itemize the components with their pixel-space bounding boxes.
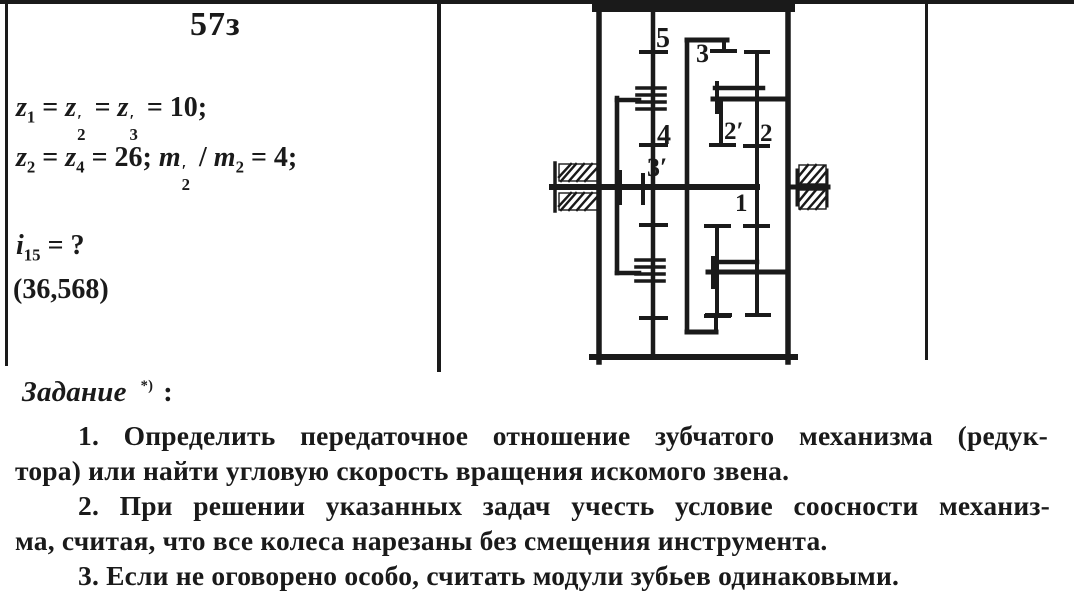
task-heading-word: Задание: [22, 376, 127, 408]
gear-housing: [592, 3, 795, 362]
label-gear-2p: 2′: [724, 118, 744, 145]
task-footnote-mark: *): [141, 378, 153, 394]
answer-value: (36,568): [13, 274, 109, 306]
label-gear-3: 3: [696, 39, 709, 68]
task-heading: Задание*):: [22, 376, 173, 409]
label-gear-4: 4: [657, 120, 671, 151]
cell-left-border: [5, 2, 8, 366]
question-formula-i15: i15 = ?: [16, 230, 85, 262]
task-heading-colon: :: [163, 376, 173, 408]
given-formula-z2: z2 = z4 = 26; m′2 / m2 = 4;: [16, 142, 297, 191]
task-item-1-line-1: 1. Определить передаточное отношение зуб…: [78, 420, 1048, 452]
gear-mechanism-diagram: 5 4 3′ 3 2′ 2 1: [440, 0, 930, 375]
problem-number: 57з: [190, 6, 241, 44]
task-item-2-line-1: 2. При решении указанных задач учесть ус…: [78, 490, 1050, 522]
label-gear-1: 1: [735, 190, 748, 217]
task-item-1-line-2: тора) или найти угловую скорость вращени…: [15, 455, 789, 487]
scanned-textbook-page: { "colors": { "ink": "#1a1a1a", "paper":…: [0, 0, 1074, 600]
task-item-3: 3. Если не оговорено особо, считать моду…: [78, 560, 899, 592]
label-gear-3p: 3′: [647, 153, 667, 182]
output-bearing: [789, 165, 828, 209]
given-formula-z1: z1 = z′2 = z′3 = 10;: [16, 92, 207, 141]
task-item-2-line-2: ма, считая, что все колеса нарезаны без …: [15, 525, 828, 557]
gear-block-bottom: [636, 260, 664, 281]
label-gear-5: 5: [656, 23, 670, 54]
label-gear-2: 2: [760, 120, 773, 147]
